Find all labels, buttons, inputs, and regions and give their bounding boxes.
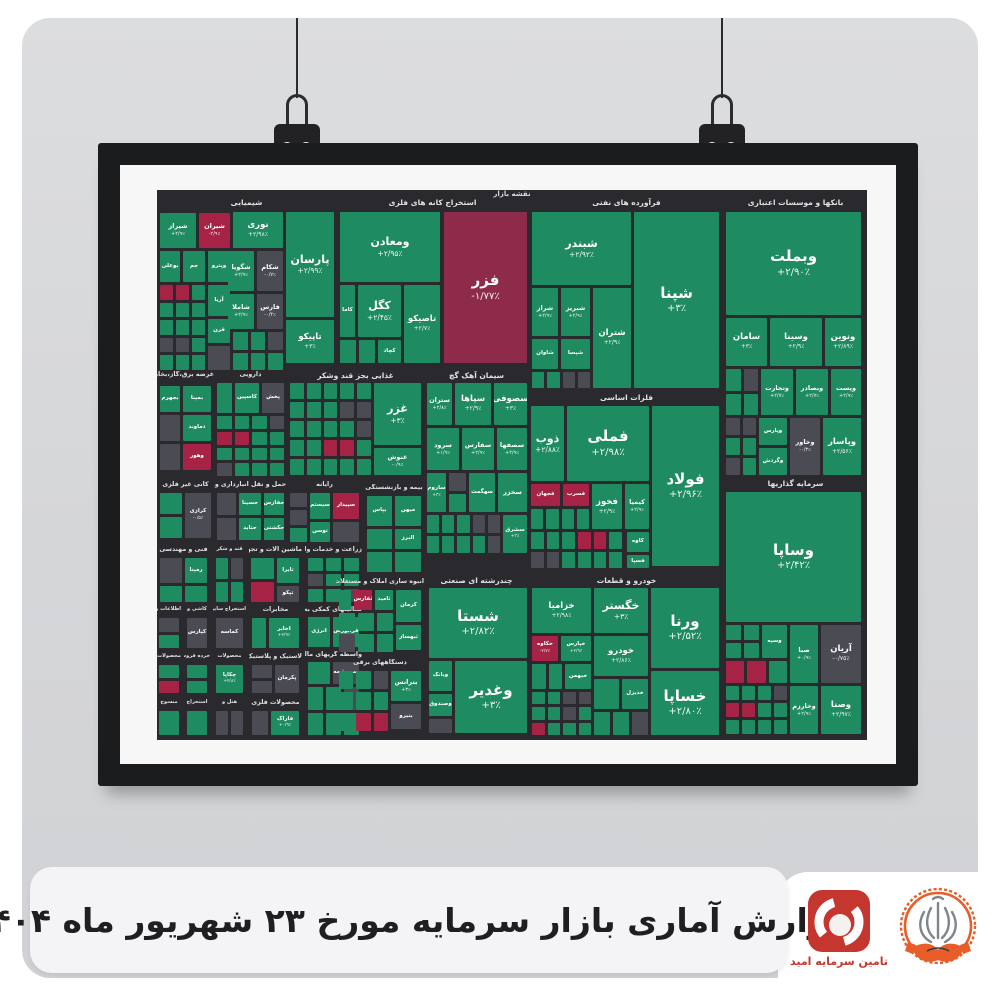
stock-name: خپارس <box>566 642 585 648</box>
stock-tile: رمپنا <box>185 558 207 583</box>
sector-header: شیمیایی <box>157 198 336 207</box>
mosaic-tile <box>159 635 179 649</box>
mosaic-tile <box>594 679 619 709</box>
mosaic-tile <box>442 536 454 554</box>
mosaic-tile <box>577 509 589 529</box>
mosaic-tile <box>233 332 248 350</box>
mosaic-tile <box>160 517 182 538</box>
mosaic-tile <box>547 372 559 388</box>
mosaic-tile <box>532 723 545 735</box>
stock-name: سهگمت <box>471 490 493 496</box>
stock-name: کیمیا <box>629 499 645 506</box>
stock-tile: فجهان <box>531 484 560 506</box>
stock-name: اخابر <box>277 627 290 633</box>
stock-tile: حفارس <box>264 493 284 515</box>
mosaic-tile <box>231 711 243 735</box>
stock-tile: نوری+۲/۹۸٪ <box>233 212 283 248</box>
stock-change: +۲/۹٪ <box>839 394 853 400</box>
stock-name: خکاوه <box>537 642 553 648</box>
mosaic-tile <box>251 332 266 350</box>
stock-tile: شگویا+۲/۹٪ <box>228 251 254 291</box>
stock-name: بمپنا <box>191 396 203 402</box>
stock-tile: سصفها+۲/۹٪ <box>497 428 527 470</box>
stock-name: سصفها <box>500 442 524 449</box>
stock-tile: شاملا+۲/۹٪ <box>228 294 254 329</box>
stock-tile: شاوان <box>532 339 558 369</box>
stock-name: تایرا <box>282 568 294 574</box>
mosaic-tile <box>744 625 759 640</box>
mosaic-tile <box>290 493 307 507</box>
mosaic-tile <box>758 686 771 700</box>
mosaic-tile <box>427 536 439 554</box>
mosaic-tile <box>594 712 610 735</box>
stock-change: +۳٪ <box>304 344 315 351</box>
mosaic-tile <box>356 671 370 689</box>
mosaic-tile <box>326 558 341 571</box>
stock-tile: وپترو <box>208 251 230 282</box>
omid-capital-label: تامین سرمایه امید <box>784 955 894 968</box>
mosaic-tile <box>160 338 173 353</box>
stock-name: وسینا <box>784 333 808 342</box>
mosaic-tile <box>747 661 765 683</box>
mosaic-tile <box>579 707 592 719</box>
sector-header: سرمایه گذاریها <box>724 479 867 488</box>
mosaic-tile <box>185 586 207 602</box>
mosaic-tile <box>235 463 250 476</box>
stock-name: ساروم <box>427 486 445 492</box>
mosaic-tile <box>176 303 189 318</box>
stock-tile: فزر-۱/۷۷٪ <box>444 212 527 363</box>
sector-header: چندرشته ای صنعتی <box>424 576 529 585</box>
stock-change: +۳٪ <box>481 700 500 711</box>
mosaic-tile <box>251 582 274 603</box>
stock-change: +۲/۹٪ <box>569 314 583 320</box>
stock-name: ومعادن <box>370 236 409 248</box>
mosaic-tile <box>357 402 371 418</box>
mosaic-tile <box>160 493 182 514</box>
stock-tile: جم <box>183 251 205 282</box>
mosaic-tile <box>562 532 575 549</box>
stock-tile: غنوش-۰/۹٪ <box>374 448 421 475</box>
mosaic-tile <box>774 703 787 717</box>
stock-tile: سهگمت <box>469 473 495 512</box>
mosaic-tile <box>532 664 546 689</box>
stock-name: سخزر <box>503 489 522 496</box>
stock-change: +۲/۹۸٪ <box>552 613 572 620</box>
mosaic-tile <box>356 692 370 710</box>
stock-tile: ثفارس <box>354 590 372 610</box>
mosaic-tile <box>217 416 232 429</box>
stock-tile: البرز <box>395 529 421 549</box>
mosaic-tile <box>307 421 321 437</box>
mosaic-tile <box>187 711 207 735</box>
stock-tile: سرود+۱/۹٪ <box>427 428 459 470</box>
mosaic-tile <box>377 613 393 631</box>
stock-tile: شپنا+۳٪ <box>634 212 719 388</box>
stock-name: وسپه <box>767 639 781 645</box>
mosaic-tile <box>176 285 189 300</box>
mosaic-tile <box>217 383 232 413</box>
stock-name: کپارس <box>188 630 206 636</box>
mosaic-tile <box>252 416 267 429</box>
stock-change: +۲/۹٪ <box>278 634 291 639</box>
mosaic-tile <box>427 515 439 533</box>
stock-change: +۲/۸۹٪ <box>833 344 853 351</box>
mosaic-tile <box>744 643 759 658</box>
stock-change: +۲/۹۸٪ <box>591 447 624 458</box>
stock-name: کگل <box>368 300 391 312</box>
mosaic-tile <box>159 681 179 694</box>
stock-tile: شستا+۲/۸۲٪ <box>429 588 527 658</box>
stock-name: شاوان <box>536 351 553 357</box>
mosaic-tile <box>358 634 374 652</box>
clip-hook-right <box>711 94 733 128</box>
stock-tile: میهن <box>395 496 421 526</box>
stock-name: تپکو <box>283 591 294 597</box>
mosaic-tile <box>532 692 545 704</box>
mosaic-tile <box>374 713 388 731</box>
stock-change: -۲/۷٪ <box>540 650 550 655</box>
sector-header: استخراج <box>184 699 210 705</box>
mosaic-tile <box>192 338 205 353</box>
mosaic-tile <box>216 558 228 579</box>
stock-change: +۰/۹٪ <box>797 656 811 662</box>
stock-tile: توسن <box>310 522 330 542</box>
stock-name: شکام <box>261 264 278 271</box>
stock-name: چکاپا <box>223 673 236 679</box>
stock-name: وپارس <box>764 429 782 435</box>
mosaic-tile <box>270 463 285 476</box>
mosaic-tile <box>743 438 757 455</box>
sector-header: استخراج سایر <box>213 606 246 612</box>
mosaic-tile <box>609 552 622 569</box>
stock-change: +۰/۹٪ <box>279 724 292 729</box>
mosaic-tile <box>339 590 351 610</box>
hanging-string-right <box>721 18 723 98</box>
mosaic-tile <box>333 522 359 542</box>
mosaic-tile <box>579 723 592 735</box>
stock-name: وتجارت <box>765 385 789 392</box>
stock-name: وصنا <box>831 701 851 710</box>
stock-name: شراز <box>537 305 553 312</box>
stock-name: وپست <box>836 385 856 392</box>
stock-name: کماسه <box>221 630 239 636</box>
stock-tile: وگردش <box>759 448 787 475</box>
stock-tile: کرازی-۰/۵٪ <box>185 493 211 538</box>
stock-change: +۲/۹٪ <box>788 344 805 351</box>
stock-tile: بنیرو <box>391 704 421 729</box>
stock-name: شیراز <box>168 223 187 230</box>
stock-tile: وسپه <box>762 625 787 658</box>
mosaic-tile <box>233 353 248 371</box>
mosaic-tile <box>217 463 232 476</box>
stock-tile: شتران+۲/۹٪ <box>593 288 631 388</box>
stock-tile: حکشتی <box>264 518 284 540</box>
stock-name: ثامید <box>378 597 391 603</box>
mosaic-tile <box>290 402 304 418</box>
mosaic-tile <box>339 671 353 689</box>
stock-tile: سپیدار <box>333 493 359 519</box>
mosaic-tile <box>160 285 173 300</box>
stock-name: پخش <box>266 395 280 401</box>
stock-tile: فخوز+۲/۹٪ <box>592 484 622 529</box>
mosaic-tile <box>270 416 285 429</box>
stock-tile: خبهمن <box>565 664 591 689</box>
stock-change: +۲/۹٪ <box>505 451 519 457</box>
stock-tile: وغدیر+۳٪ <box>455 661 527 733</box>
mosaic-tile <box>531 509 543 529</box>
mosaic-tile <box>357 459 371 475</box>
stock-name: فاراک <box>277 717 293 723</box>
stock-tile: فاراک+۰/۹٪ <box>271 711 299 735</box>
stock-tile: اخابر+۲/۹٪ <box>269 618 299 648</box>
stock-change: +۲/۸٪ <box>223 680 236 685</box>
stock-change: -۰/۷٪ <box>264 273 276 279</box>
stock-tile: وساپا+۲/۴۲٪ <box>726 492 861 622</box>
mosaic-tile <box>359 340 375 363</box>
mosaic-tile <box>252 448 267 461</box>
stock-change: +۳٪ <box>505 406 516 413</box>
stock-name: بجهرم <box>161 396 178 402</box>
mosaic-tile <box>159 711 179 735</box>
mosaic-tile <box>578 552 591 569</box>
stock-name: توسن <box>312 529 328 535</box>
mosaic-tile <box>340 421 354 437</box>
stock-name: بترانس <box>395 679 418 686</box>
mosaic-tile <box>176 320 189 335</box>
mosaic-tile <box>774 720 787 734</box>
stock-tile: آریا <box>208 285 230 316</box>
stock-tile: وصنا+۲/۹۷٪ <box>821 686 861 734</box>
mosaic-tile <box>374 671 388 689</box>
stock-name: غنوش <box>387 454 407 461</box>
sector-header: هتل و <box>213 699 246 705</box>
mosaic-tile <box>307 440 321 456</box>
stock-change: +۲/۹٪ <box>630 508 644 514</box>
stock-change: +۳٪ <box>741 344 752 351</box>
stock-change: -۲/۹٪ <box>209 232 221 238</box>
mosaic-tile <box>563 372 575 388</box>
sector-header: حمل و نقل انبارداری و <box>214 481 287 488</box>
mosaic-tile <box>160 320 173 335</box>
stock-name: فزر <box>472 273 500 289</box>
stock-name: تاپیکو <box>298 333 321 342</box>
stock-change: +۲/۸۲٪ <box>461 626 494 637</box>
stock-tile: پخش <box>262 383 284 413</box>
mosaic-tile <box>160 355 173 370</box>
stock-change: +۲/۵۶٪ <box>832 449 852 456</box>
stock-tile: تاپیکو+۳٪ <box>286 320 334 363</box>
mosaic-tile <box>774 686 787 700</box>
mosaic-tile <box>457 515 469 533</box>
sector-header: زراعت و خدمات وابسته <box>305 546 362 553</box>
stock-tile: کیمیا+۲/۹٪ <box>625 484 649 529</box>
mosaic-tile <box>290 510 307 524</box>
stock-tile: بپاس <box>367 496 392 526</box>
mosaic-tile <box>449 473 466 491</box>
stock-name: شگویا <box>231 264 250 271</box>
stock-tile: بوعلی <box>160 251 180 282</box>
mosaic-tile <box>742 686 755 700</box>
stock-tile: ونوین+۲/۸۹٪ <box>825 318 861 366</box>
stock-name: سپاها <box>461 395 485 404</box>
stock-tile: شراز+۲/۹٪ <box>532 288 558 336</box>
stock-change: +۲/۷٪ <box>805 394 819 400</box>
sector-header: استخراج کانه های فلزی <box>336 198 529 207</box>
mosaic-tile <box>252 618 266 648</box>
mosaic-tile <box>726 369 741 391</box>
stock-tile: پکرمان <box>275 665 299 693</box>
sector-header: فرآورده های نفتی <box>529 198 724 207</box>
omid-capital-logo-icon <box>808 890 870 952</box>
mosaic-tile <box>270 432 285 445</box>
stock-tile: ذوب+۲/۸۸٪ <box>531 406 564 481</box>
stock-tile: شکام-۰/۷٪ <box>257 251 283 291</box>
stock-name: فسپا <box>631 559 645 565</box>
mosaic-tile <box>726 438 740 455</box>
mosaic-tile <box>548 692 561 704</box>
mosaic-tile <box>251 353 266 371</box>
stock-name: پکرمان <box>278 676 297 682</box>
mosaic-tile <box>268 353 283 371</box>
stock-name: صبا <box>798 647 809 654</box>
stock-name: خزامیا <box>548 602 574 611</box>
stock-name: سصوفی <box>494 395 527 404</box>
mosaic-tile <box>367 552 392 572</box>
stock-name: شاملا <box>232 304 250 311</box>
stock-tile: دماوند <box>183 415 211 441</box>
mosaic-tile <box>743 418 757 435</box>
mosaic-tile <box>308 589 323 602</box>
mosaic-tile <box>548 707 561 719</box>
mosaic-tile <box>632 712 648 735</box>
mosaic-tile <box>563 707 576 719</box>
mosaic-tile <box>548 723 561 735</box>
mosaic-tile <box>726 625 741 640</box>
stock-change: +۲/۹۲٪ <box>569 251 594 259</box>
stock-tile: فسرب <box>563 484 589 506</box>
stock-change: +۳٪ <box>614 613 628 621</box>
stock-name: رمپنا <box>189 568 202 574</box>
mosaic-tile <box>563 692 576 704</box>
stock-tile: ورنا+۲/۵۲٪ <box>651 588 719 668</box>
stock-tile: وتجارت+۲/۷٪ <box>761 369 793 415</box>
mosaic-tile <box>160 586 182 602</box>
mosaic-tile <box>429 719 452 733</box>
mosaic-tile <box>340 383 354 399</box>
stock-tile: ثبهساز <box>396 625 421 650</box>
mosaic-tile <box>726 458 740 475</box>
stock-tile: ثامید <box>375 590 393 610</box>
stock-tile: سپاها+۲/۹٪ <box>455 383 491 425</box>
stock-change: +۲/۹٪ <box>471 451 485 457</box>
stock-tile: فولاد+۲/۹۶٪ <box>652 406 719 566</box>
mosaic-tile <box>473 536 485 554</box>
stock-change: +۳٪ <box>432 494 441 499</box>
stock-change: +۲/۹۹٪ <box>298 267 323 275</box>
stock-tile: ستران+۲/۸٪ <box>427 383 452 425</box>
sector-header: قند و شکر <box>213 546 246 552</box>
stock-tile: وپارس <box>759 418 787 445</box>
stock-tile: کاسپین <box>235 383 259 413</box>
stock-tile: سخزر <box>498 473 527 512</box>
mosaic-tile <box>268 332 283 350</box>
stock-change: +۲/۹۶٪ <box>669 489 702 500</box>
mosaic-tile <box>324 402 338 418</box>
mosaic-tile <box>726 418 740 435</box>
mosaic-tile <box>532 372 544 388</box>
mosaic-tile <box>744 369 759 391</box>
mosaic-tile <box>324 421 338 437</box>
stock-tile: ساروم+۳٪ <box>427 473 446 512</box>
bank-sepah-emblem-icon <box>898 884 978 978</box>
stock-name: خگستر <box>603 600 640 612</box>
stock-name: شبریز <box>566 305 586 312</box>
mosaic-tile <box>726 703 739 717</box>
sector-header: خرده فروشی <box>184 653 210 659</box>
stock-change: -۰/۴٪ <box>264 313 276 319</box>
stock-name: وبملت <box>770 249 817 265</box>
stock-tile: سفارس+۲/۹٪ <box>462 428 494 470</box>
stock-change: +۲/۹٪ <box>604 340 621 347</box>
stock-name: وخاور <box>796 439 815 446</box>
mosaic-tile <box>192 285 205 300</box>
stock-name: سرود <box>434 442 452 449</box>
mosaic-tile <box>192 303 205 318</box>
stock-change: +۲/۸۰٪ <box>668 706 701 717</box>
stock-change: +۲/۹۷٪ <box>831 712 851 719</box>
mosaic-tile <box>531 552 544 569</box>
stock-name: فجهان <box>537 492 555 498</box>
mosaic-tile <box>217 448 232 461</box>
stock-name: وپترو <box>212 264 227 270</box>
stock-name: جم <box>190 264 198 270</box>
stock-name: وساپا <box>773 543 814 559</box>
mosaic-tile <box>726 661 744 683</box>
stock-tile: وبصادر+۲/۷٪ <box>796 369 828 415</box>
stock-change: +۲/۹٪ <box>234 313 248 319</box>
mosaic-tile <box>252 711 268 735</box>
mosaic-tile <box>339 613 355 631</box>
stock-name: حفارس <box>264 501 284 507</box>
mosaic-tile <box>160 444 180 470</box>
mosaic-tile <box>252 432 267 445</box>
stock-change: +۲/۵۲٪ <box>668 631 701 642</box>
mosaic-tile <box>744 394 759 416</box>
sector-header: منسوج <box>157 699 181 705</box>
mosaic-tile <box>290 528 307 542</box>
mosaic-tile <box>192 320 205 335</box>
stock-name: سیستم <box>310 503 330 509</box>
stock-tile: بترانس+۳٪ <box>391 671 421 701</box>
stock-name: تاصیکو <box>408 315 436 324</box>
stock-name: سپیدار <box>337 503 355 509</box>
mosaic-tile <box>742 703 755 717</box>
mosaic-tile <box>613 712 629 735</box>
sector-header: سیمان آهک گچ <box>424 371 529 380</box>
stock-name: فارس <box>260 304 279 311</box>
stock-tile: تاصیکو+۲/۷٪ <box>404 285 440 363</box>
stock-name: ذوب <box>536 433 560 445</box>
mosaic-tile <box>726 394 741 416</box>
mosaic-tile <box>449 494 466 512</box>
mosaic-tile <box>594 552 607 569</box>
stock-tile: خگستر+۳٪ <box>594 588 648 633</box>
stock-tile: شیراز+۲/۹٪ <box>160 213 196 248</box>
stock-tile: شپسا <box>561 339 590 369</box>
sector-header: محصولات <box>213 653 246 659</box>
stock-tile: وپاسار+۲/۵۶٪ <box>823 418 861 475</box>
